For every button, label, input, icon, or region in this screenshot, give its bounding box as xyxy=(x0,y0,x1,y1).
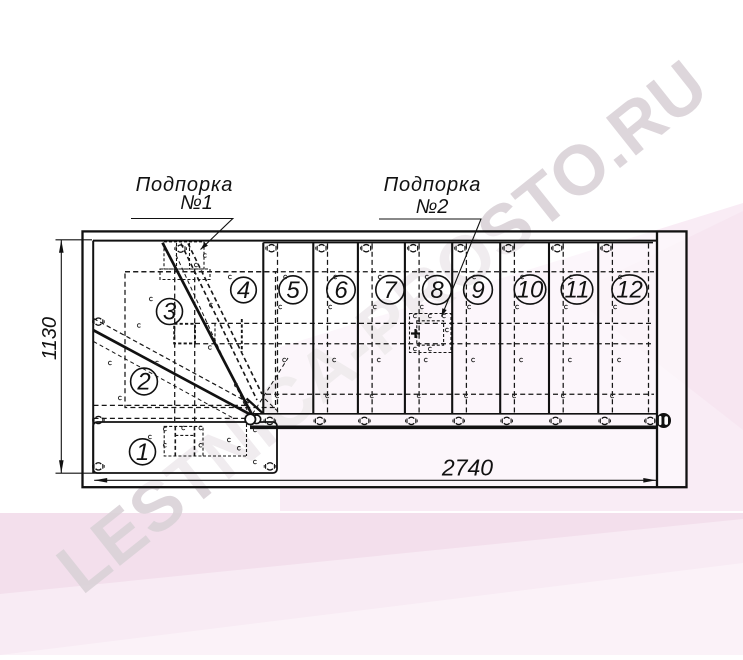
svg-text:10: 10 xyxy=(517,277,544,304)
svg-text:4: 4 xyxy=(237,277,250,304)
svg-text:2: 2 xyxy=(136,369,150,396)
svg-text:1130: 1130 xyxy=(39,317,61,360)
svg-text:8: 8 xyxy=(430,277,444,304)
svg-text:3: 3 xyxy=(163,299,177,326)
svg-text:1: 1 xyxy=(136,439,149,466)
svg-text:Подпорка: Подпорка xyxy=(384,174,482,196)
svg-text:7: 7 xyxy=(383,277,398,304)
svg-text:2740: 2740 xyxy=(441,455,493,481)
svg-text:11: 11 xyxy=(565,277,590,304)
svg-text:№1: №1 xyxy=(180,192,213,214)
svg-text:12: 12 xyxy=(616,277,643,304)
svg-text:6: 6 xyxy=(334,277,348,304)
svg-text:№2: №2 xyxy=(416,196,449,218)
svg-text:9: 9 xyxy=(471,277,484,304)
svg-text:5: 5 xyxy=(286,277,300,304)
